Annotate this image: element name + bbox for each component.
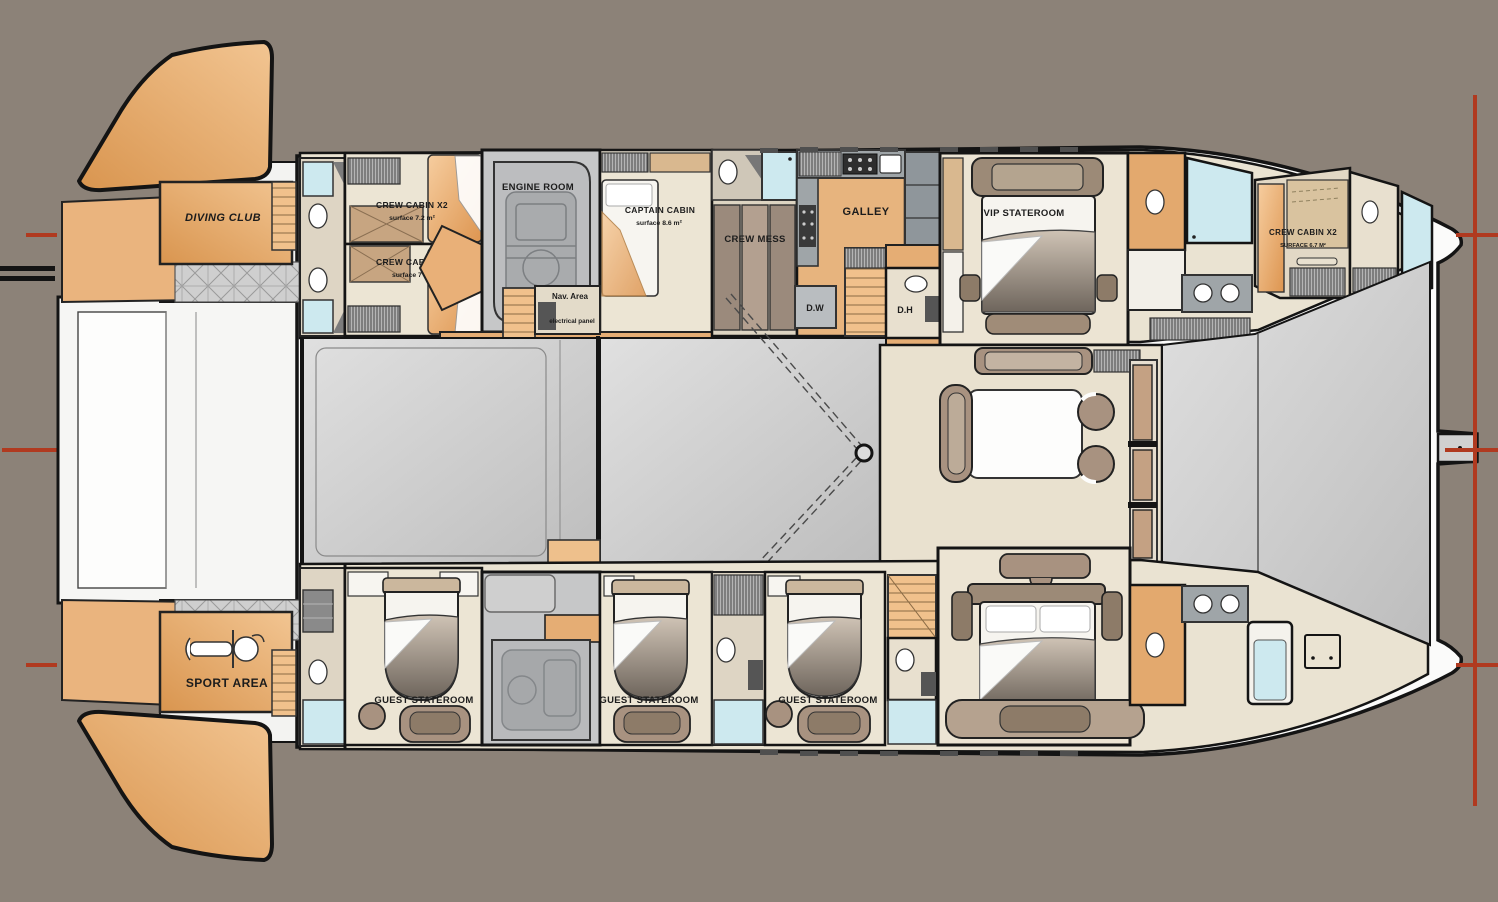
captain-cabin-label: CAPTAIN CABIN bbox=[625, 205, 695, 215]
nav-area-sublabel: electrical panel bbox=[549, 318, 595, 325]
bottom-aft-heads bbox=[300, 564, 345, 749]
mid-head bbox=[712, 572, 765, 745]
room-day-head: D.H bbox=[886, 268, 940, 338]
salon bbox=[880, 345, 1162, 566]
engine-room-label: ENGINE ROOM bbox=[502, 182, 574, 193]
room-vip-stateroom: VIP STATEROOM bbox=[940, 153, 1128, 345]
dishwasher-label: D.W bbox=[806, 303, 824, 313]
sport-area-label: SPORT AREA bbox=[186, 676, 268, 690]
crew-cabin-upper-label: CREW CABIN X2 bbox=[376, 200, 448, 210]
crew-mess-label: CREW MESS bbox=[724, 234, 785, 245]
floor-plan-svg: DIVING CLUB SPORT AREA CREW CA bbox=[0, 0, 1498, 902]
room-guest-stateroom-1: GUEST STATEROOM bbox=[345, 568, 482, 745]
day-head-label: D.H bbox=[897, 305, 913, 315]
salon-window-band bbox=[1128, 360, 1157, 563]
guest-stateroom-1-label: GUEST STATEROOM bbox=[374, 695, 473, 706]
galley-label: GALLEY bbox=[842, 206, 889, 218]
room-master-stateroom bbox=[938, 548, 1144, 745]
crew-cabin-upper-surface: surface 7.2 m² bbox=[389, 215, 435, 222]
floor-plan-stage: DIVING CLUB SPORT AREA CREW CA bbox=[0, 0, 1498, 902]
room-sport-area: SPORT AREA bbox=[160, 612, 296, 716]
nav-area-label: Nav. Area bbox=[552, 292, 589, 301]
room-guest-stateroom-2: GUEST STATEROOM bbox=[599, 572, 712, 745]
top-aft-heads bbox=[300, 153, 345, 338]
room-crew-mess: CREW MESS bbox=[712, 150, 797, 336]
dining-table bbox=[968, 390, 1082, 478]
deck-center-fitting bbox=[856, 445, 872, 461]
diving-club-label: DIVING CLUB bbox=[185, 212, 261, 224]
crew-cabin-bow-label: CREW CABIN X2 bbox=[1269, 228, 1337, 237]
captain-cabin-surface: surface 8.6 m² bbox=[636, 220, 682, 227]
room-captain-cabin: CAPTAIN CABIN surface 8.6 m² bbox=[600, 150, 712, 336]
vip-stateroom-label: VIP STATEROOM bbox=[984, 208, 1065, 219]
room-guest-stateroom-3: GUEST STATEROOM bbox=[765, 572, 885, 745]
guest-stateroom-2-label: GUEST STATEROOM bbox=[599, 695, 698, 706]
cockpit-deck bbox=[302, 336, 598, 566]
guest-stateroom-3-label: GUEST STATEROOM bbox=[778, 695, 877, 706]
crew-cabin-bow-surface: SURFACE 6.7 M² bbox=[1280, 242, 1326, 249]
room-diving-club: DIVING CLUB bbox=[160, 182, 296, 264]
room-crew-cabin-aft-upper: CREW CABIN X2 surface 7.2 m² bbox=[345, 153, 482, 244]
bottom-stair-head-column bbox=[888, 575, 936, 744]
garage bbox=[482, 572, 600, 745]
